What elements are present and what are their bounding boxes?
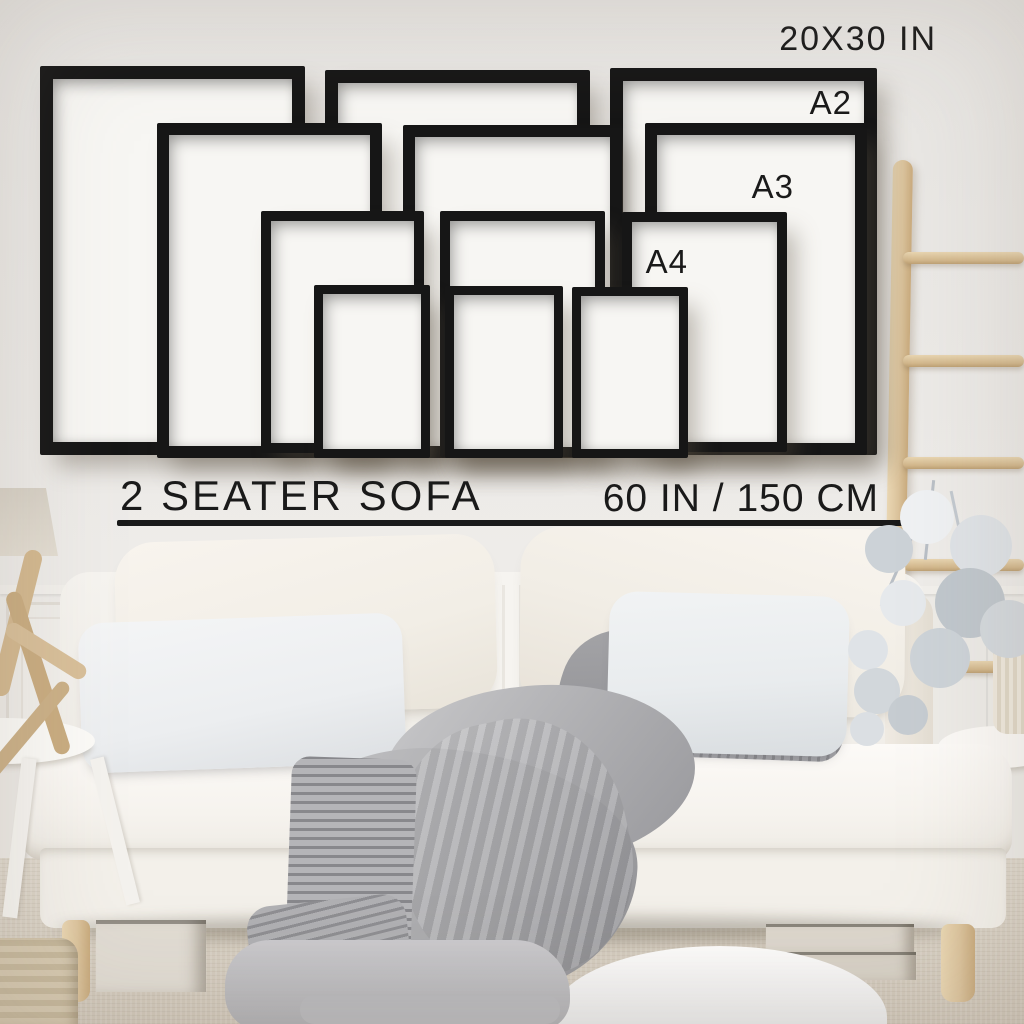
woven-basket <box>0 938 78 1024</box>
ladder-rung <box>903 252 1024 264</box>
blanket-floor-pool-edge <box>300 995 560 1024</box>
ladder-rung <box>903 355 1024 367</box>
lumbar-pillow-left <box>77 612 406 773</box>
size-label-a4: A4 <box>646 243 688 281</box>
ladder-rung <box>903 457 1024 469</box>
poster-frame-A4 <box>445 286 563 458</box>
storage-box-left <box>96 920 206 992</box>
flower-bouquet <box>840 480 1024 750</box>
sofa-width-caption: 60 IN / 150 CM <box>603 477 879 521</box>
size-label-20x30: 20X30 IN <box>779 20 937 59</box>
driftwood-sculpture <box>0 548 110 798</box>
sofa-caption: 2 SEATER SOFA <box>120 472 483 520</box>
size-label-a2: A2 <box>810 84 852 122</box>
storage-box-right-top <box>766 924 914 952</box>
poster-frame-A4 <box>314 285 430 458</box>
poster-frame-A4 <box>572 287 688 458</box>
living-room-size-guide-photo: 20X30 IN A2 A3 A4 2 SEATER SOFA 60 IN / … <box>0 0 1024 1024</box>
size-label-a3: A3 <box>752 168 794 206</box>
measuring-line <box>117 520 915 526</box>
sofa-leg-right <box>941 924 975 1002</box>
